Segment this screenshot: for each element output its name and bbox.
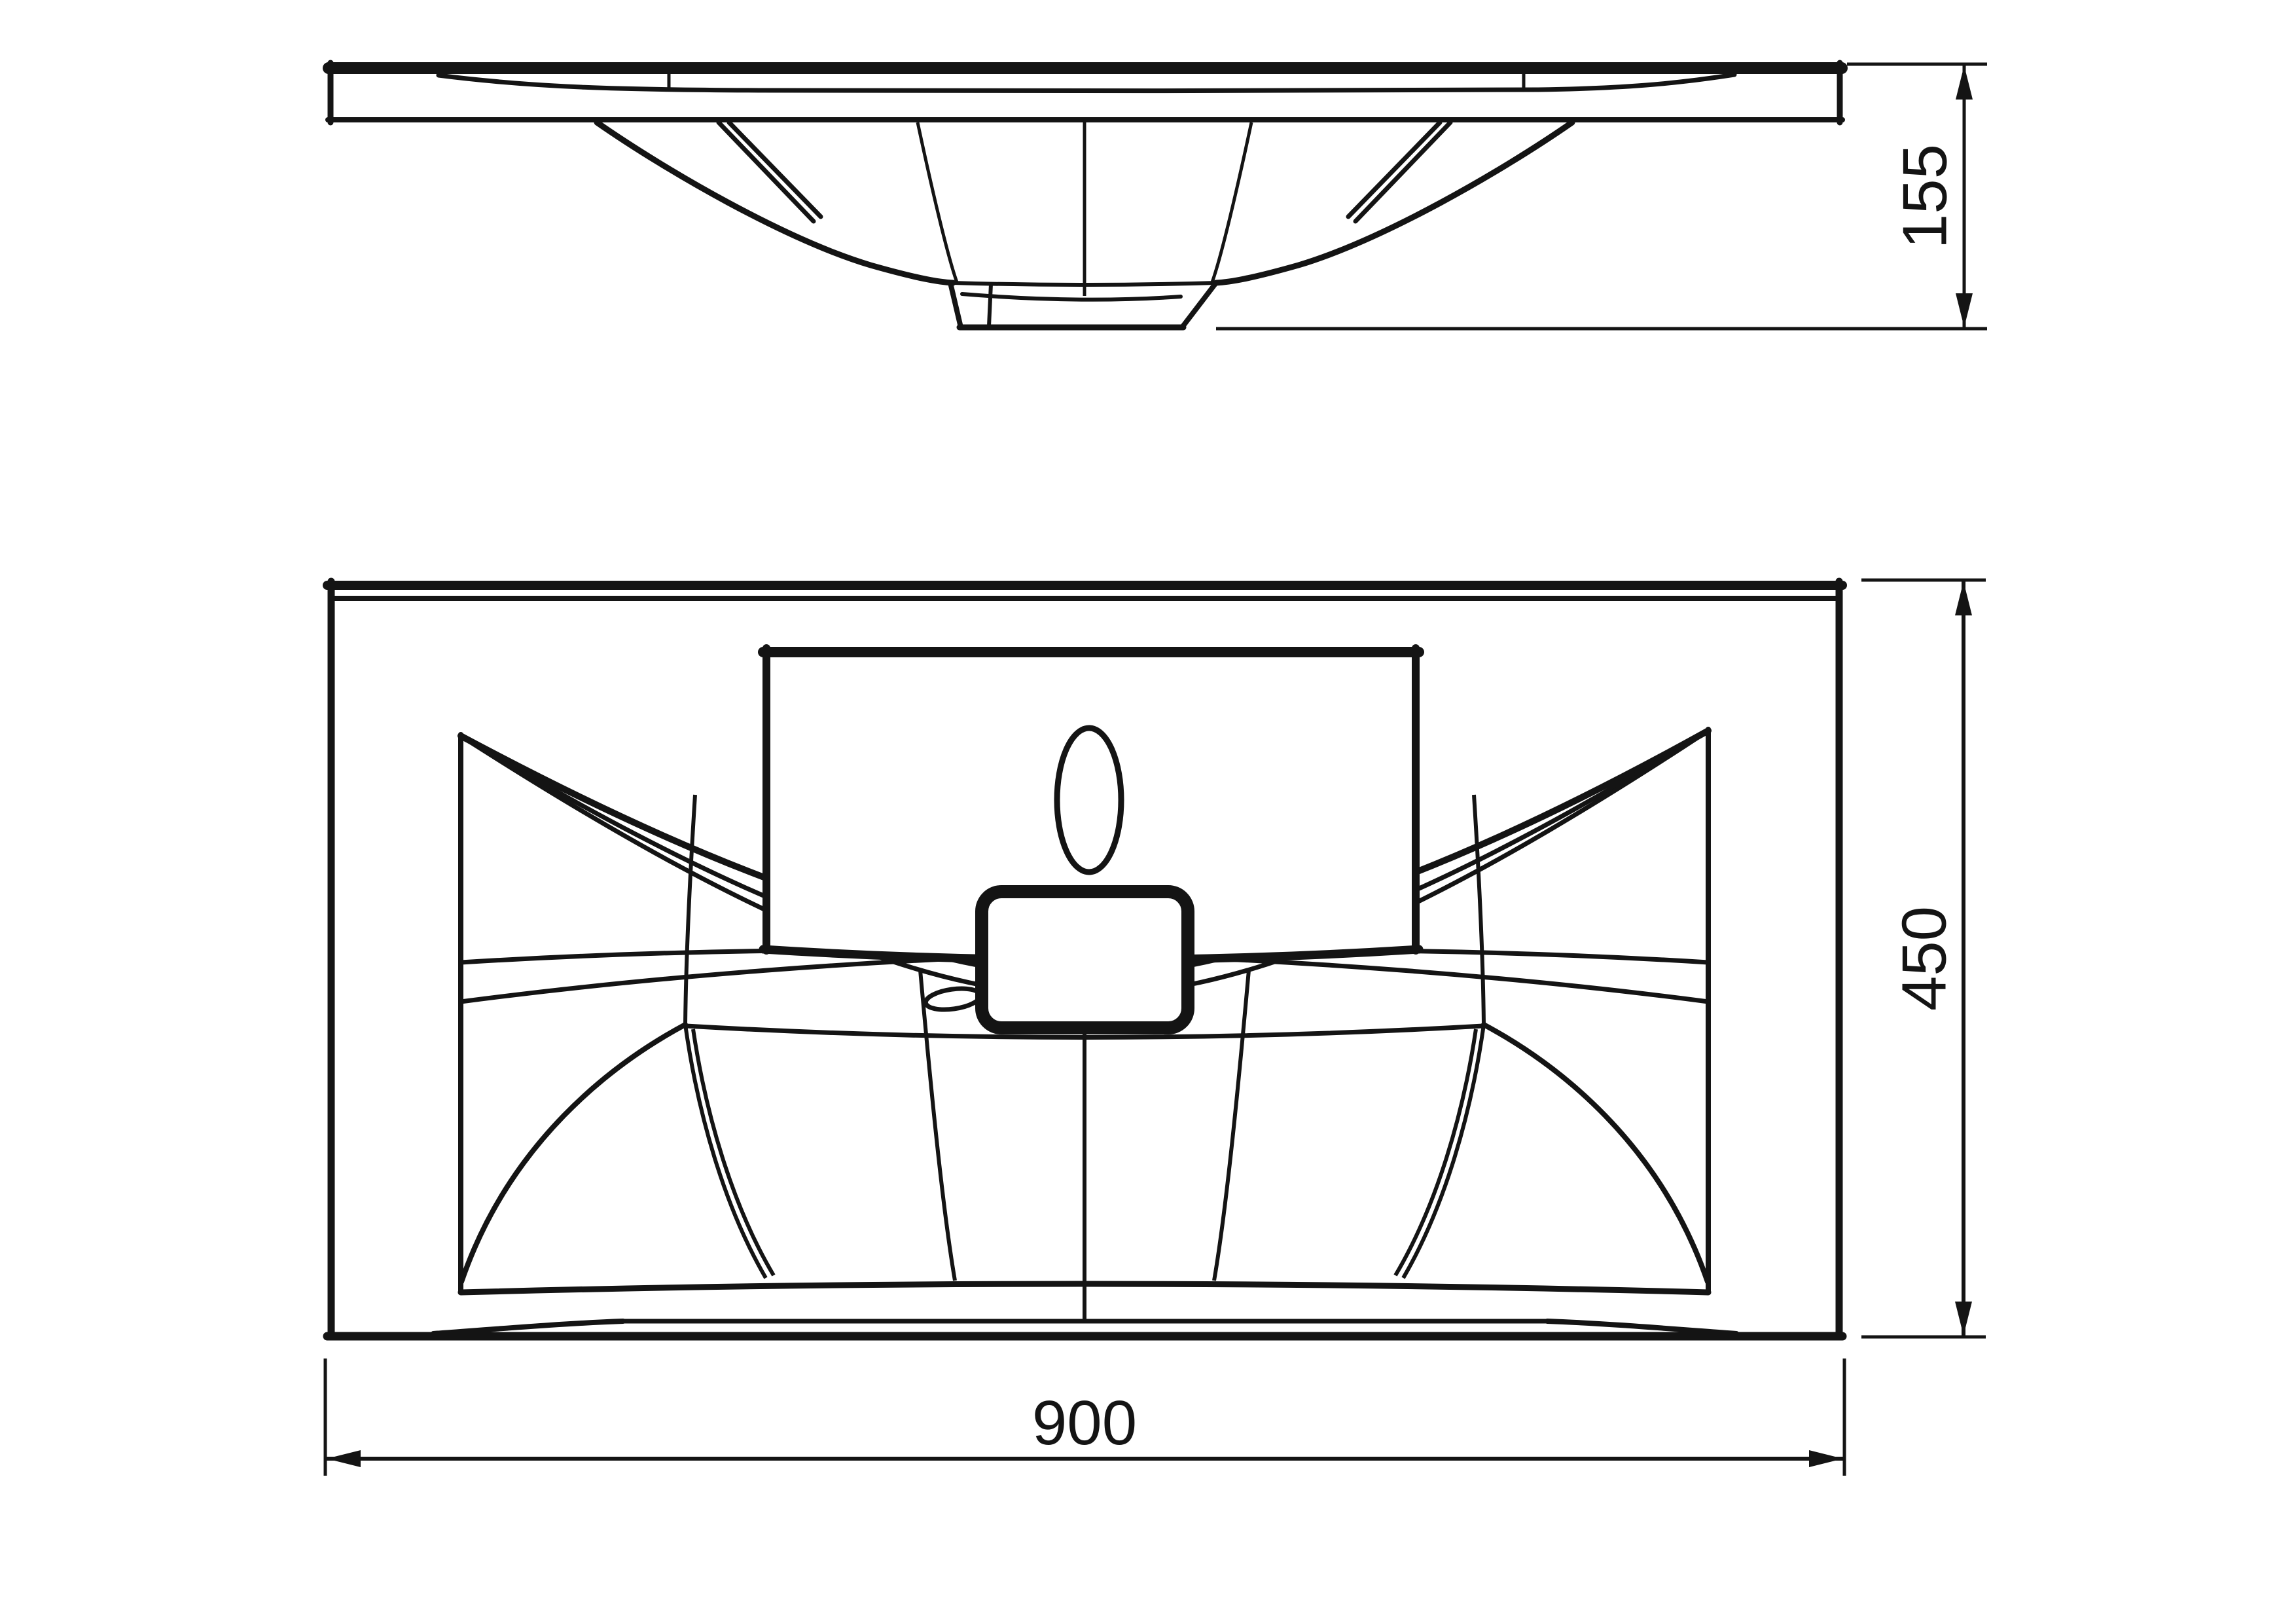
basin-rim-edge-front	[439, 75, 1734, 91]
drain-plan	[982, 892, 1188, 1028]
drawing-sheet: 155	[0, 0, 2296, 1623]
arrow-right-icon	[1809, 1450, 1843, 1467]
dimension-height-155: 155	[1216, 64, 1987, 329]
dimension-label-depth: 450	[1890, 906, 1960, 1011]
arrow-down-icon	[1955, 1302, 1972, 1336]
dimension-label-height: 155	[1890, 144, 1960, 249]
arrow-left-icon	[327, 1450, 361, 1467]
arrow-down-icon	[1956, 293, 1973, 327]
arrow-up-icon	[1955, 581, 1972, 615]
faucet-hole	[1057, 728, 1121, 872]
washbasin-technical-drawing: 155	[0, 0, 2296, 1623]
bowl-profile-front	[597, 122, 1572, 296]
dimension-width-900: 900	[325, 1359, 1844, 1476]
arrow-up-icon	[1956, 65, 1973, 100]
plan-view: 900 450	[325, 580, 1986, 1476]
dimension-label-width: 900	[1032, 1388, 1137, 1458]
dimension-depth-450: 450	[1861, 580, 1986, 1337]
overflow-hole	[924, 985, 981, 1012]
front-view: 155	[328, 63, 1987, 329]
countertop-slab-front	[328, 63, 1842, 122]
